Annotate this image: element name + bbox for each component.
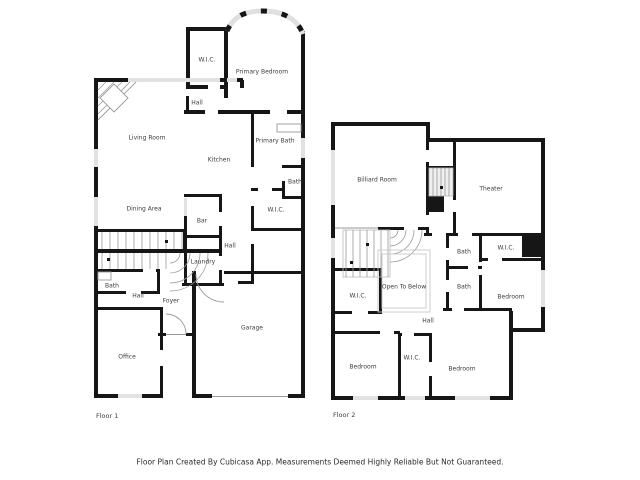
room-label-theater: Theater	[479, 186, 502, 193]
room-label-wic-bottom: W.I.C.	[404, 355, 421, 362]
room-label-open-to-below: Open To Below	[382, 284, 426, 291]
room-label-office: Office	[118, 354, 136, 361]
room-label-billiard-room: Billiard Room	[357, 177, 397, 184]
room-label-bath-lower: Bath	[457, 284, 471, 291]
room-label-kitchen: Kitchen	[208, 157, 231, 164]
room-label-bedroom-bottom-right: Bedroom	[448, 366, 475, 373]
room-label-bath-lower: Bath	[105, 283, 119, 290]
floor-plan-drawing	[0, 0, 640, 480]
room-label-laundry: Laundry	[191, 259, 215, 266]
room-label-garage: Garage	[241, 325, 263, 332]
room-label-wic-right: W.I.C.	[498, 245, 515, 252]
floor2-walls	[331, 122, 545, 400]
floor-plan-canvas: W.I.C. Primary Bedroom Hall Living Room …	[0, 0, 640, 480]
room-label-wic-left: W.I.C.	[350, 293, 367, 300]
closet-shelves	[429, 168, 453, 196]
room-label-living-room: Living Room	[129, 135, 166, 142]
floor1-title: Floor 1	[96, 412, 118, 420]
room-label-bedroom-right: Bedroom	[497, 294, 524, 301]
room-label-wic-center: W.I.C.	[268, 207, 285, 214]
room-label-wic-primary: W.I.C.	[199, 57, 216, 64]
room-label-hall-lower: Hall	[132, 293, 144, 300]
room-label-primary-bedroom: Primary Bedroom	[236, 69, 288, 76]
floor1-doors	[166, 274, 288, 397]
corner-fireplace-hatch	[98, 82, 136, 120]
floor2-title: Floor 2	[333, 411, 355, 419]
room-label-hall: Hall	[422, 318, 434, 325]
room-label-bath-upper: Bath	[457, 249, 471, 256]
room-label-primary-bath: Primary Bath	[255, 138, 294, 145]
room-label-hall-center: Hall	[224, 243, 236, 250]
disclaimer-text: Floor Plan Created By Cubicasa App. Meas…	[136, 458, 503, 467]
room-label-hall-upper: Hall	[191, 100, 203, 107]
room-label-bath-small: Bath	[288, 179, 302, 186]
room-label-foyer: Foyer	[163, 298, 180, 305]
room-label-dining-area: Dining Area	[126, 206, 161, 213]
bay-window-arc	[227, 11, 303, 34]
room-label-bedroom-bottom-left: Bedroom	[349, 364, 376, 371]
wall-chase-blocks	[426, 196, 542, 257]
room-label-bar: Bar	[197, 218, 207, 225]
